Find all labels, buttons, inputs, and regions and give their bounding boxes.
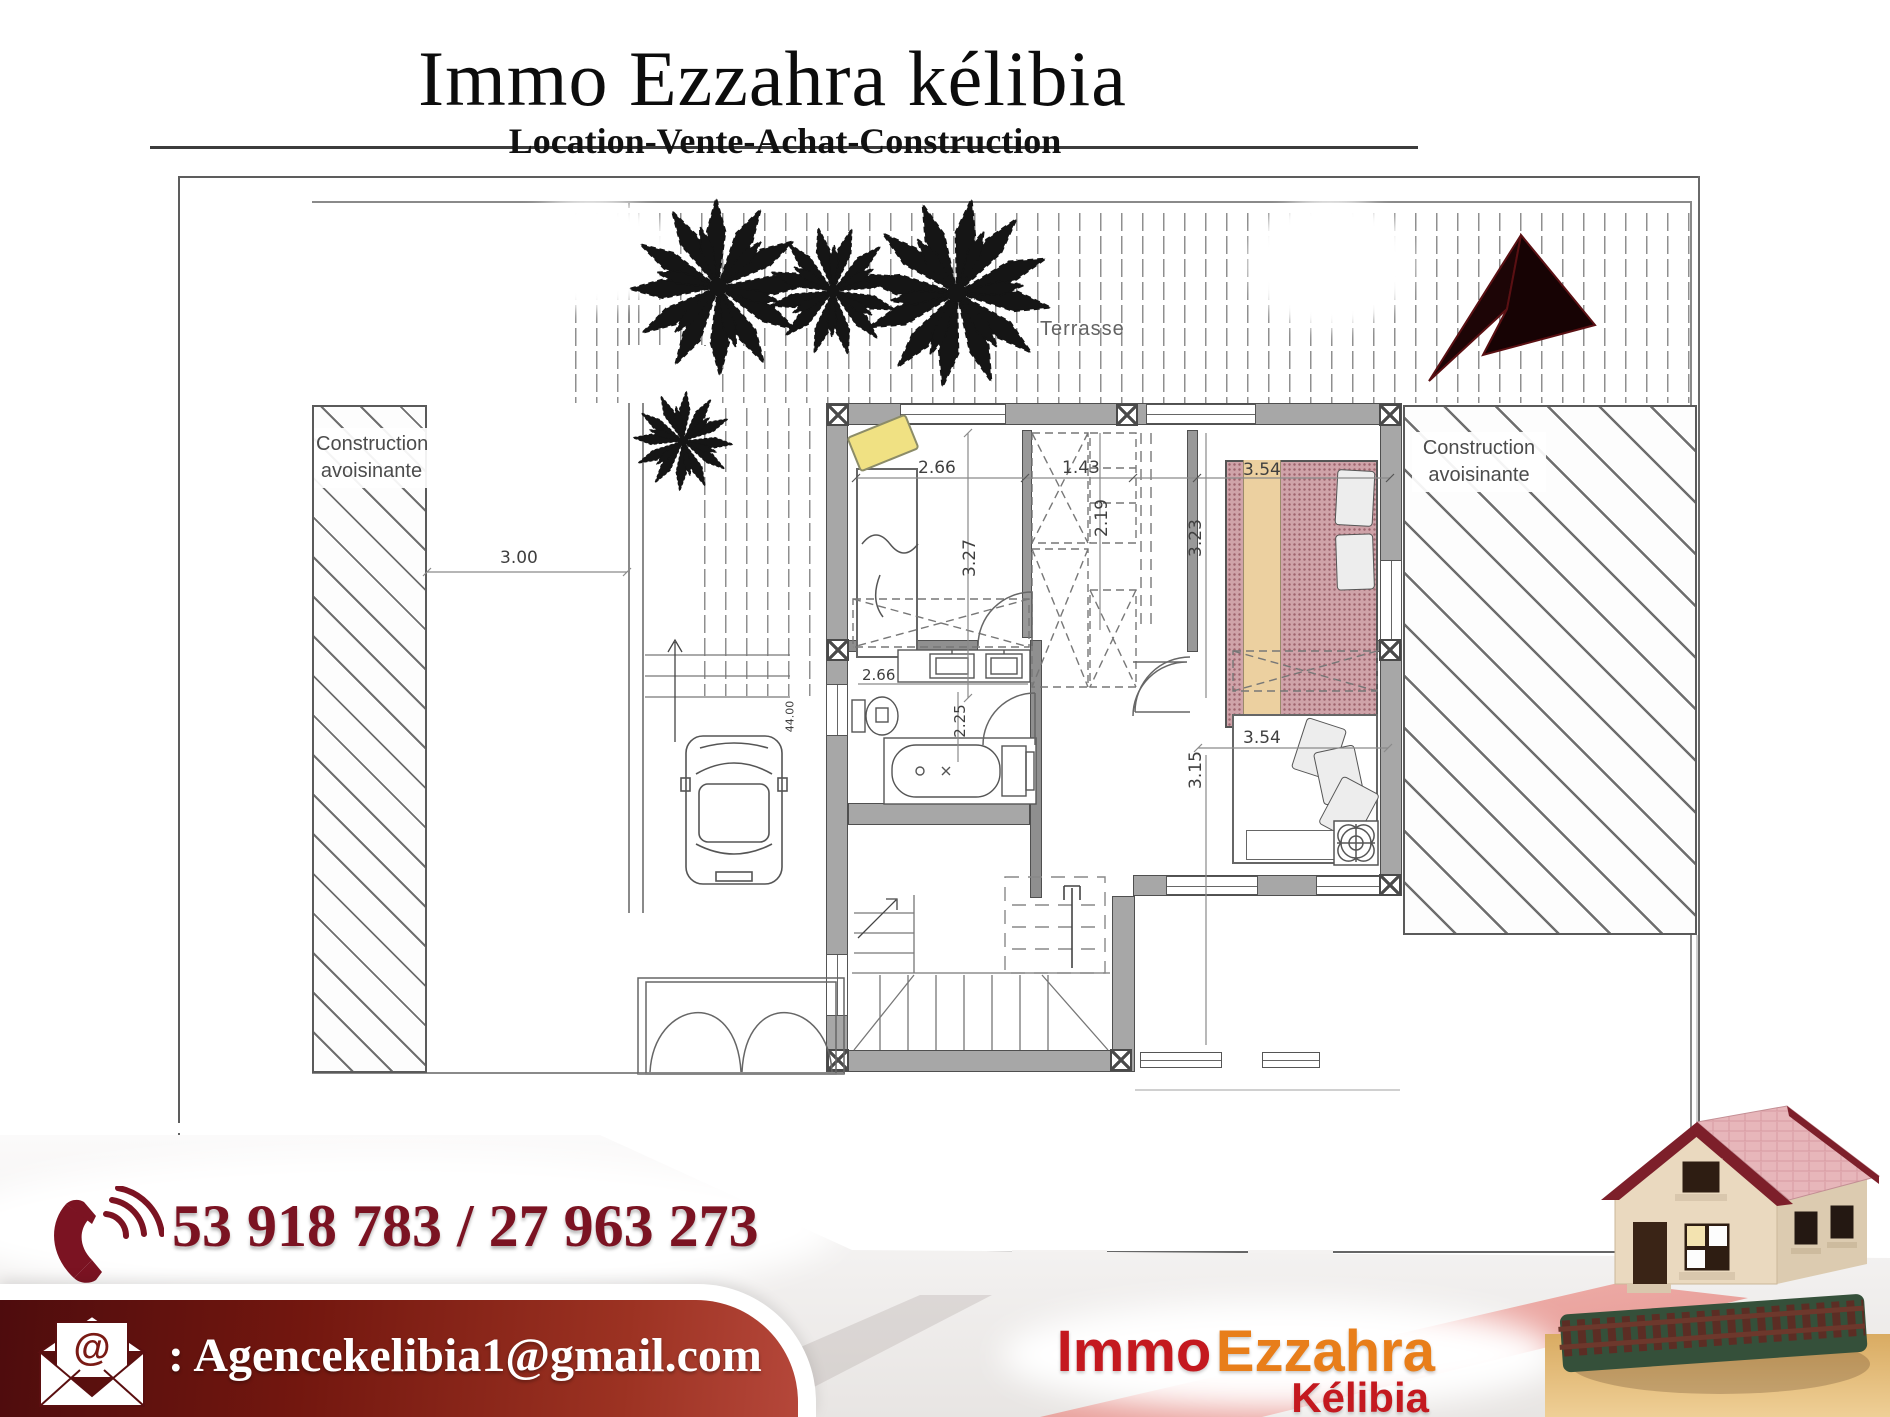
brand-word-immo: Immo [1057,1319,1212,1384]
email-separator: : [168,1329,184,1382]
email-banner: @ : Agencekelibia1@gmail.com [0,1300,798,1417]
brand-logo: Immo Ezzahra Kélibia [960,1322,1435,1417]
house-photo [1545,1072,1890,1417]
at-symbol: @ [73,1327,110,1369]
email-address: Agencekelibia1@gmail.com [193,1329,762,1382]
email-address-row: : Agencekelibia1@gmail.com [168,1328,762,1383]
phone-number: 53 918 783 / 27 963 273 [172,1192,759,1261]
real-estate-flyer: Immo Ezzahra kélibia Location-Vente-Acha… [0,0,1890,1417]
envelope-icon: @ [26,1308,158,1410]
model-house [1601,1106,1879,1293]
phone-icon [44,1186,164,1290]
